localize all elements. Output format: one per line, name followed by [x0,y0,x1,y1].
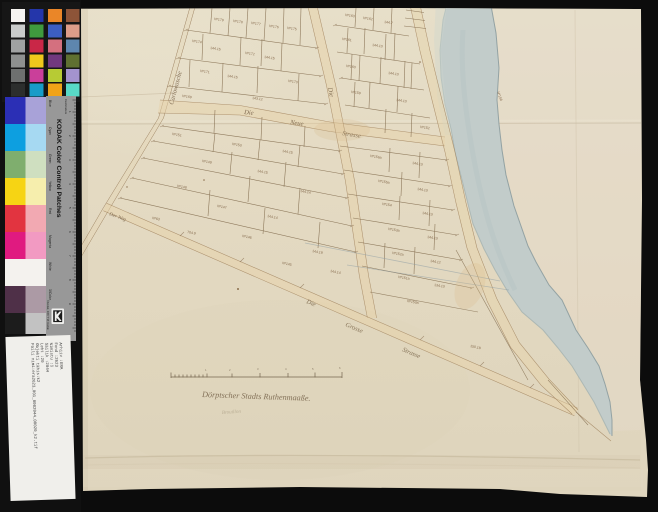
svg-text:KODAK Color Control Patches: KODAK Color Control Patches [55,119,62,218]
svg-text:Centimeters: Centimeters [64,99,68,115]
svg-text:Säilik :2044: Säilik :2044 [43,343,49,373]
svg-text:Red: Red [48,208,52,214]
svg-text:White: White [48,262,52,271]
svg-text:Blue: Blue [48,100,52,107]
svg-text:Cyan: Cyan [48,127,52,135]
svg-text:Yellow: Yellow [48,181,52,191]
svg-text:Magenta: Magenta [48,235,52,248]
svg-text:Leht :20: Leht :20 [39,343,45,363]
svg-text:©Kodak, 2007 TM: Kodak: ©Kodak, 2007 TM: Kodak [46,300,50,330]
svg-text:Green: Green [48,154,52,164]
